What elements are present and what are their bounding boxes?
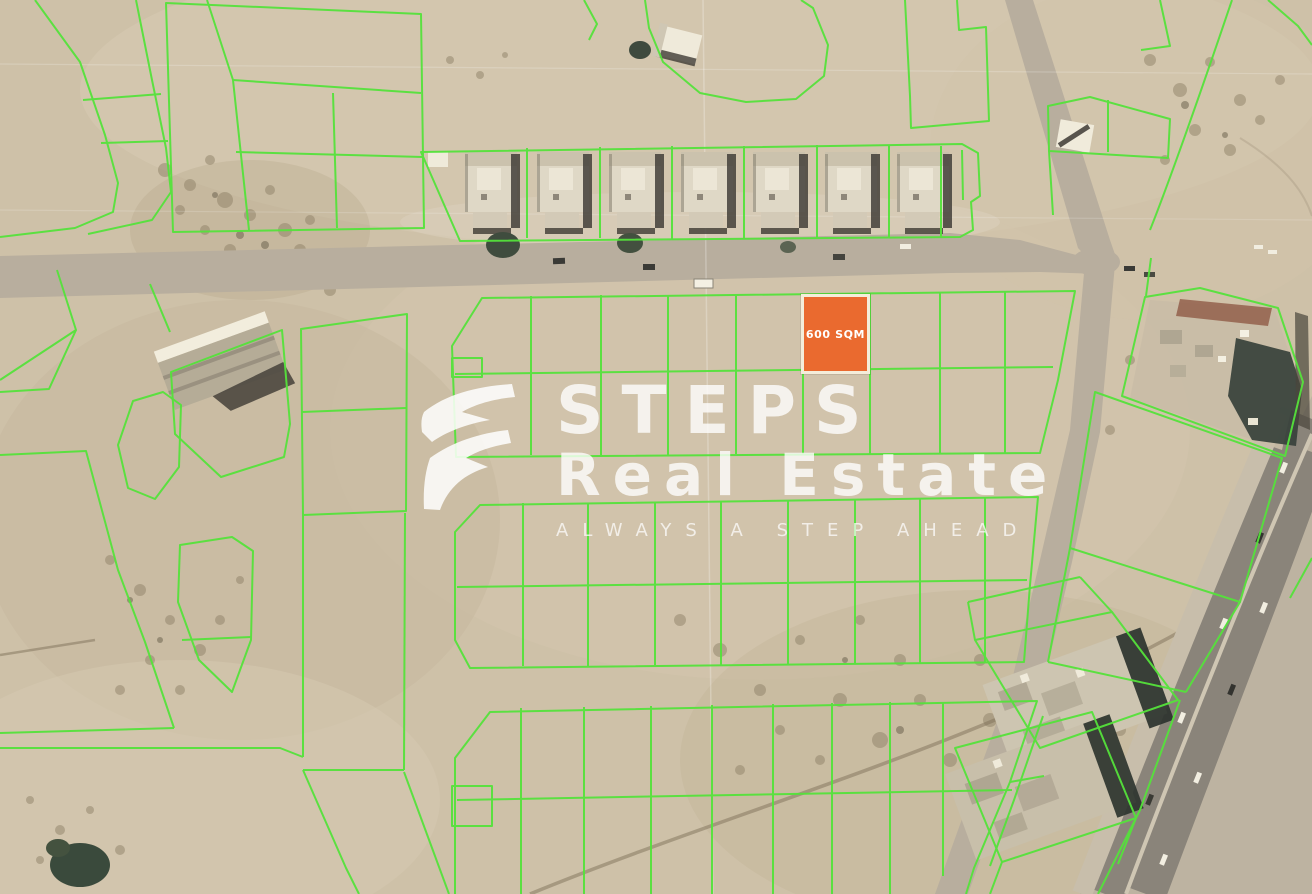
satellite-layer: [0, 0, 1312, 894]
small-shed: [428, 152, 448, 167]
plot-area-label: 600 SQM: [806, 328, 865, 341]
top-right-building: [1056, 119, 1094, 152]
highlighted-plot-600sqm[interactable]: 600 SQM: [801, 294, 870, 374]
map-canvas[interactable]: STEPS Real Estate ALWAYS A STEP AHEAD 60…: [0, 0, 1312, 894]
villa-row: [428, 152, 952, 234]
